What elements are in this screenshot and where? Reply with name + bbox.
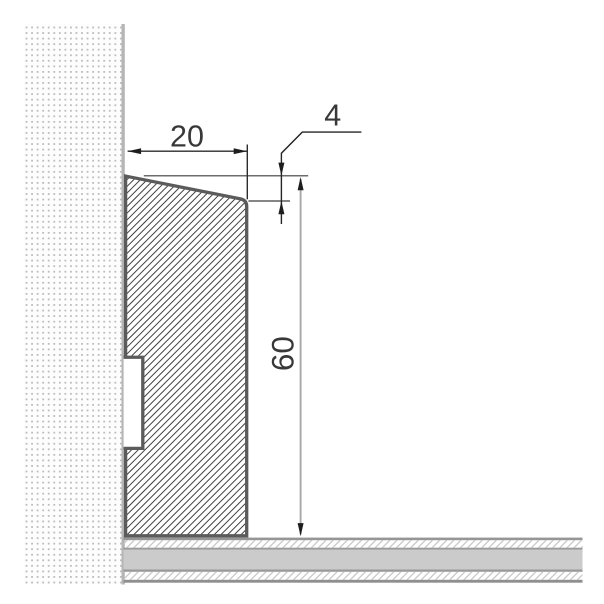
svg-text:60: 60: [265, 336, 301, 371]
svg-text:20: 20: [170, 119, 204, 153]
svg-text:4: 4: [324, 99, 341, 133]
